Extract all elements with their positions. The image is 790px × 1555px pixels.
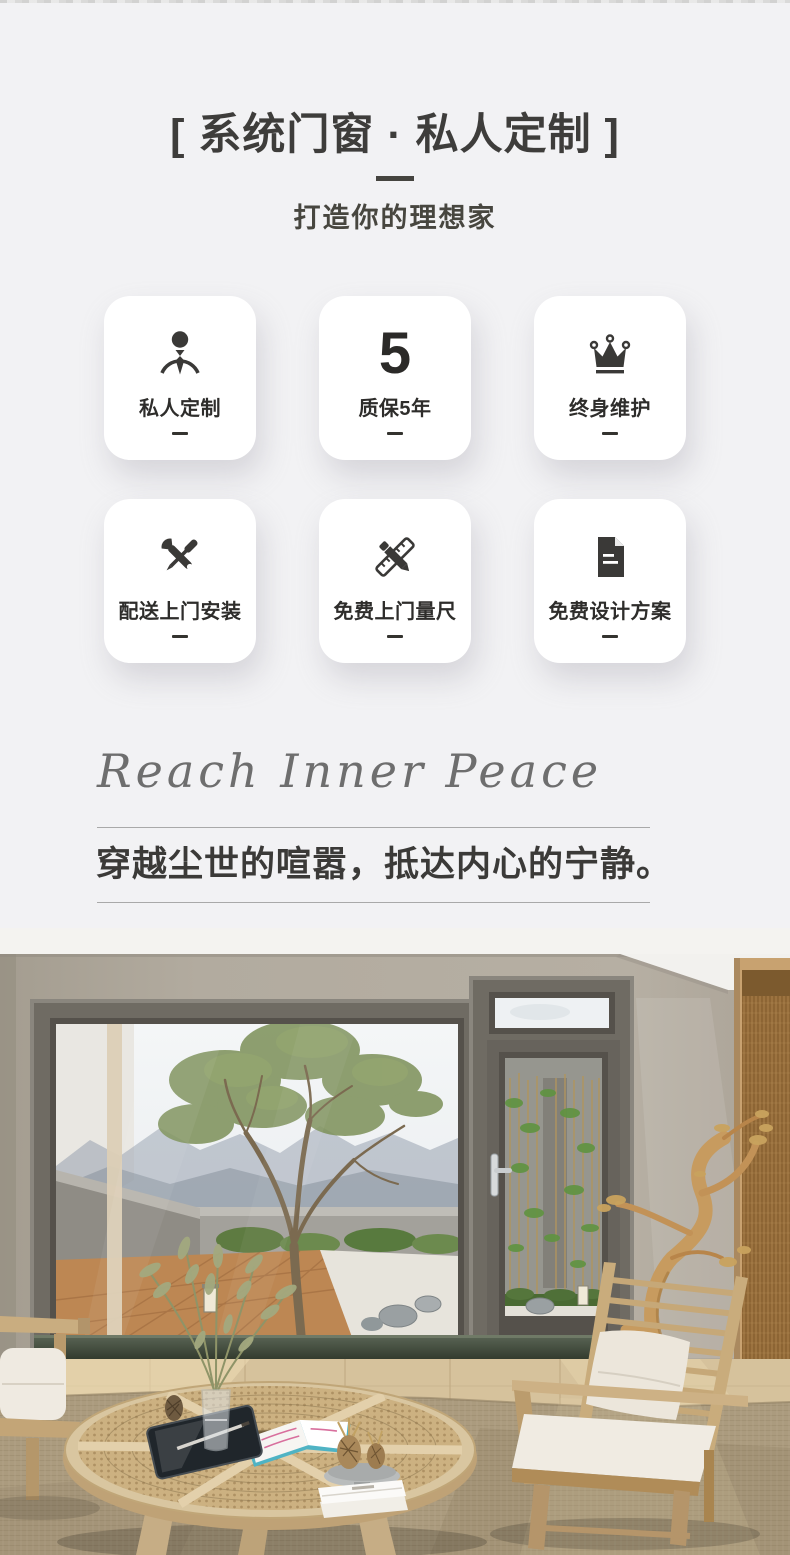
door-view-rock: [526, 1298, 554, 1314]
warranty-years-number: 5: [379, 323, 411, 385]
wood-slat-screen: [734, 958, 790, 1400]
label-dash: [387, 635, 403, 638]
quote-english-script: Reach Inner Peace: [97, 744, 697, 798]
label-dash: [172, 635, 188, 638]
feature-grid: 私人定制 5 质保5年 终身维护: [104, 296, 686, 663]
feature-card-design: 免费设计方案: [534, 499, 686, 663]
feature-label: 质保5年: [358, 392, 431, 421]
label-dash: [602, 432, 618, 435]
feature-label: 私人定制: [139, 392, 221, 421]
courtyard-view: [56, 1020, 464, 1348]
pinecone: [165, 1395, 183, 1421]
photo-panoramic-window: [30, 999, 484, 1358]
label-dash: [387, 432, 403, 435]
back-pillow: [586, 1330, 690, 1420]
lifestyle-photo: [0, 928, 790, 1555]
quote-chinese: 穿越尘世的喧嚣，抵达内心的宁静。: [96, 836, 736, 887]
page-title: [ 系统门窗 · 私人定制 ]: [0, 100, 790, 162]
design-document-icon: [583, 526, 637, 588]
feature-label: 免费设计方案: [549, 595, 672, 624]
measuring-tools-icon: [368, 526, 422, 588]
door-view: [505, 1058, 604, 1316]
feature-label: 配送上门安装: [119, 595, 242, 624]
person-tie-icon: [153, 323, 207, 385]
title-dash-divider: [376, 176, 414, 181]
feature-card-install: 配送上门安装: [104, 499, 256, 663]
label-dash: [602, 635, 618, 638]
feature-card-warranty: 5 质保5年: [319, 296, 471, 460]
crown-icon: [583, 323, 637, 385]
quote-divider-bottom: [97, 902, 650, 903]
repair-tools-icon: [153, 526, 207, 588]
window-sill: [34, 1335, 630, 1359]
product-detail-page: [ 系统门窗 · 私人定制 ] 打造你的理想家 私人定制 5 质保5年: [0, 0, 790, 1555]
quote-divider-top: [97, 827, 650, 828]
top-edge-strip: [0, 0, 790, 3]
page-subtitle: 打造你的理想家: [0, 196, 790, 235]
feature-card-private-custom: 私人定制: [104, 296, 256, 460]
label-dash: [172, 432, 188, 435]
feature-card-lifetime-service: 终身维护: [534, 296, 686, 460]
door-view-lantern: [578, 1286, 588, 1305]
feature-label: 免费上门量尺: [334, 595, 457, 624]
feature-label: 终身维护: [569, 392, 651, 421]
feature-card-measure: 免费上门量尺: [319, 499, 471, 663]
